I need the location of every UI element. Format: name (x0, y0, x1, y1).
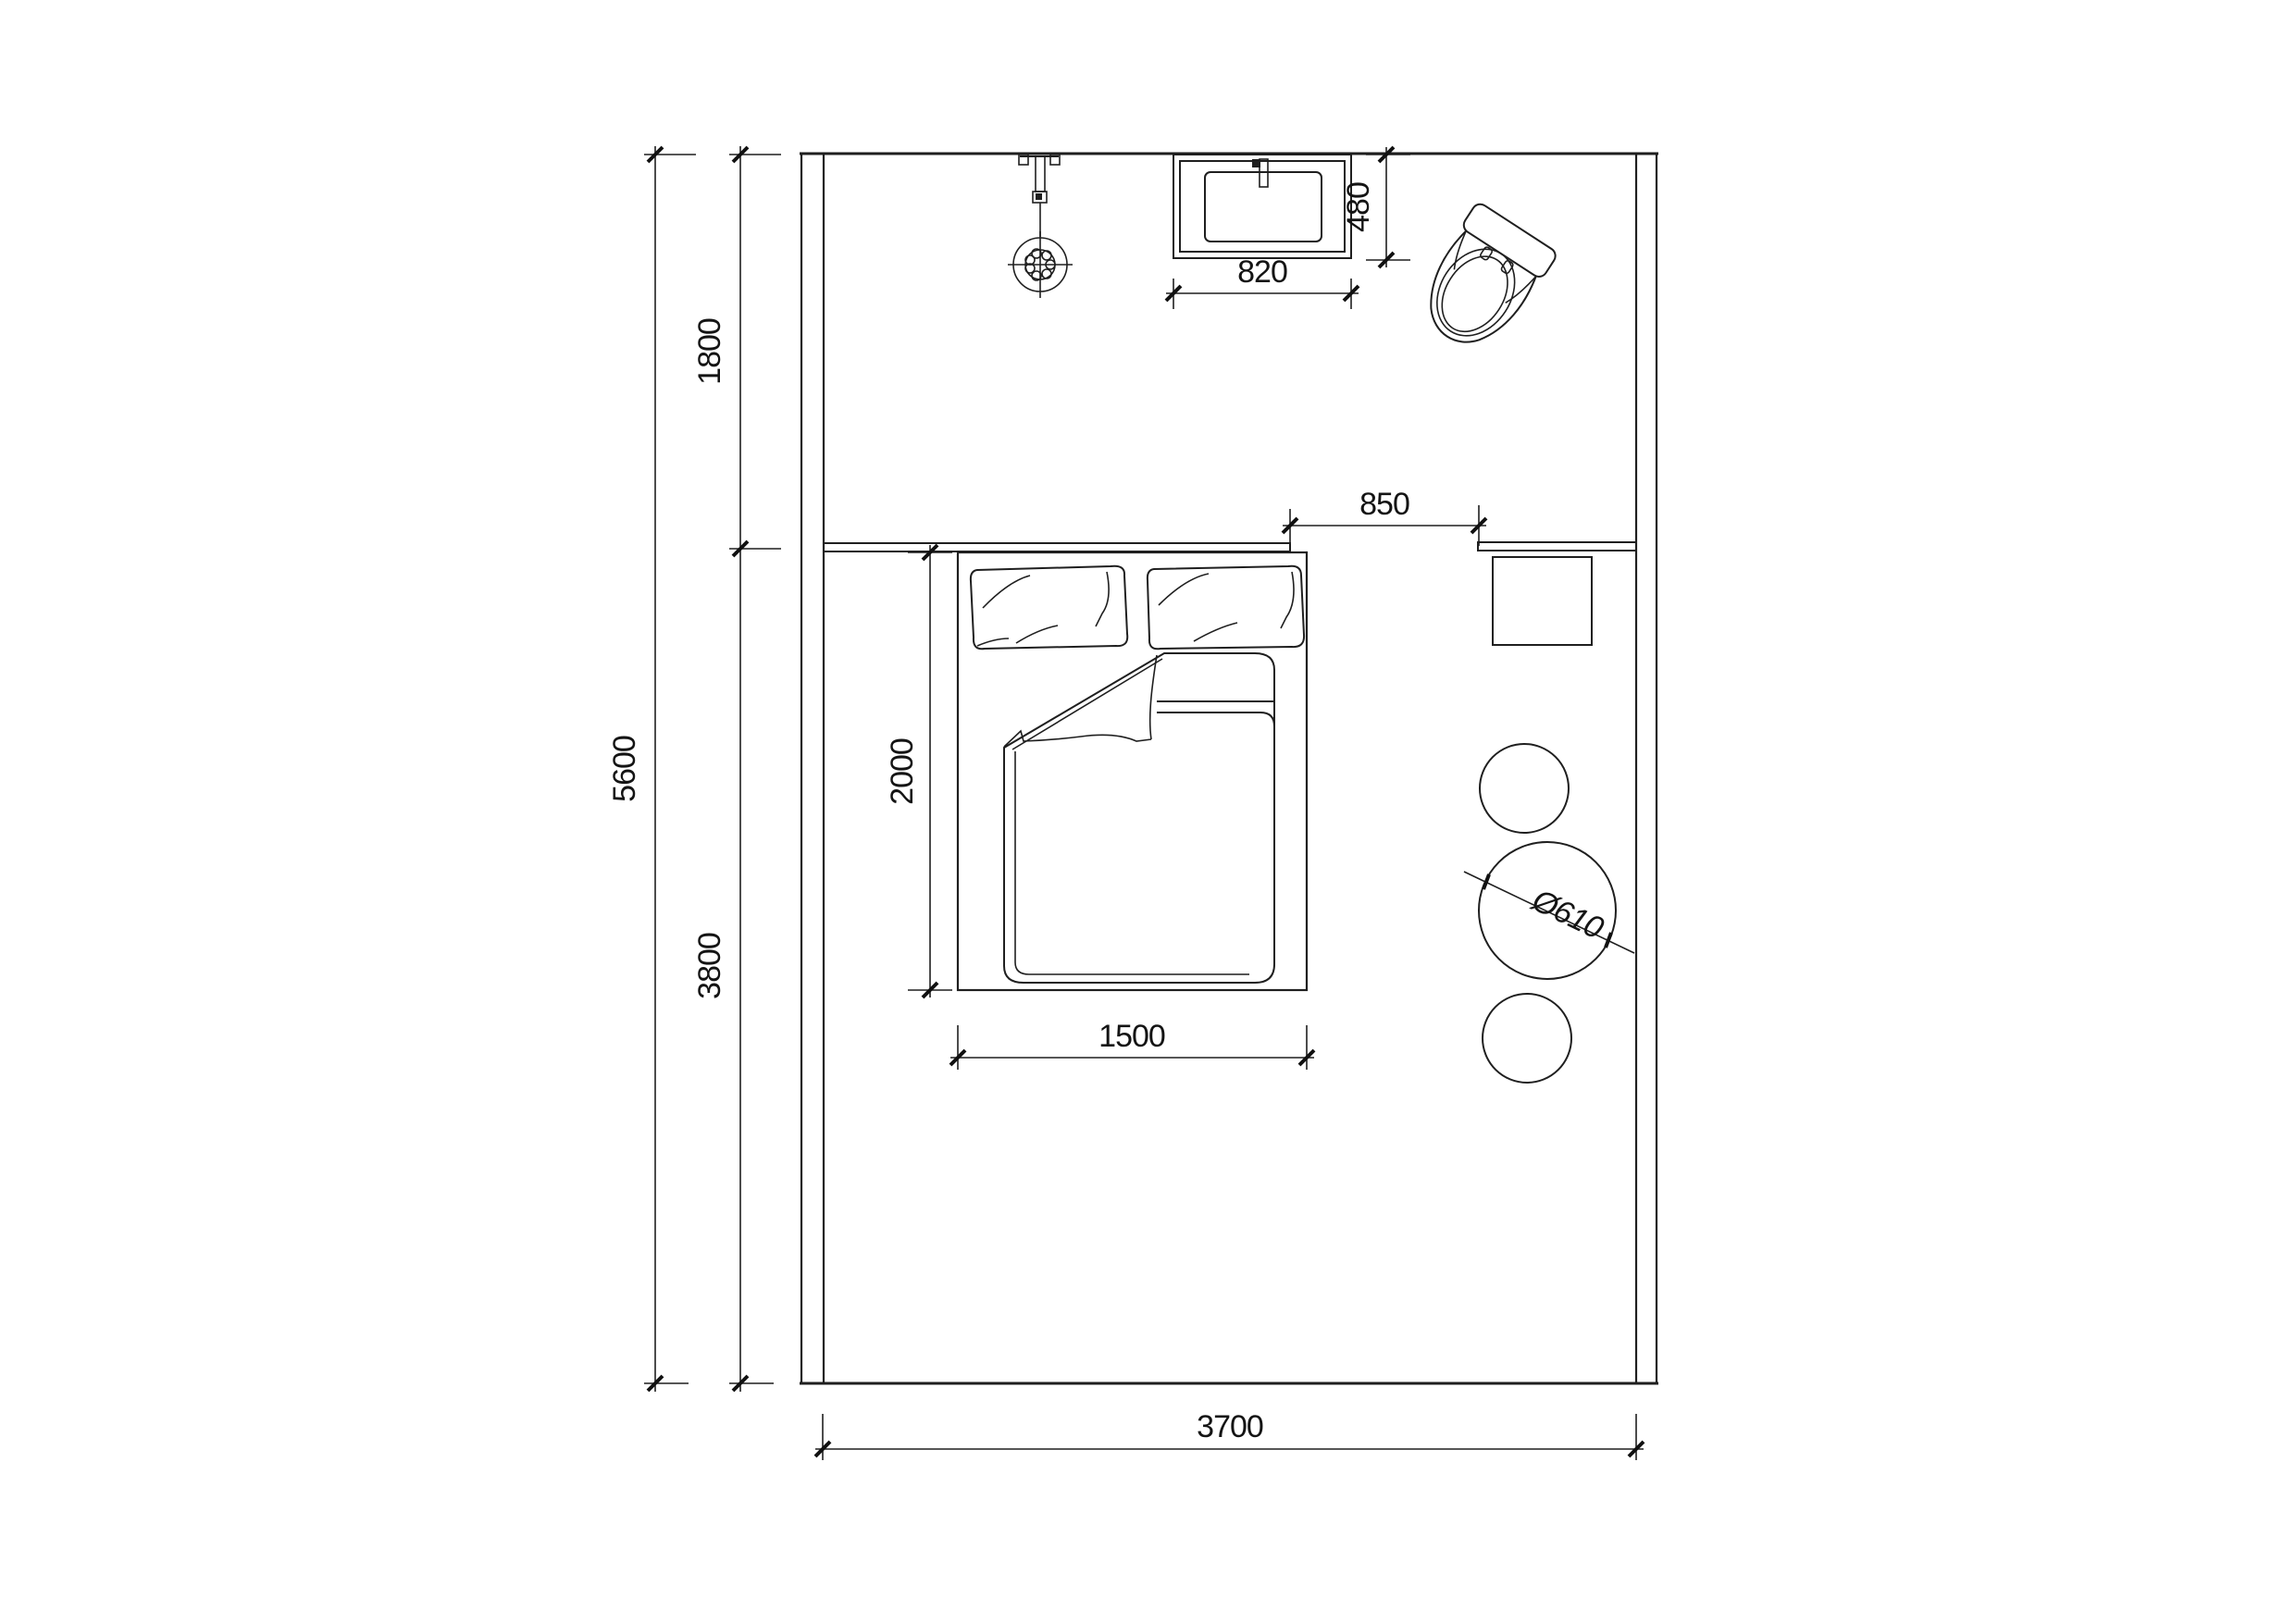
pillow-icon (1148, 566, 1304, 650)
floor-plan-drawing: 5600 1800 3800 2000 1500 3700 850 820 48… (0, 0, 2296, 1623)
toilet-tank (1460, 201, 1558, 279)
square-stool-icon (1493, 557, 1592, 645)
dim-text-3700: 3700 (1197, 1409, 1263, 1444)
dim-text-2000: 2000 (885, 738, 920, 805)
round-stool-icon (1480, 744, 1569, 833)
double-bed-plan-icon (958, 552, 1307, 990)
toilet-icon (1407, 201, 1558, 363)
seat-hinge (1500, 260, 1514, 275)
dim-text-1500: 1500 (1098, 1019, 1165, 1054)
floor-plan-canvas: 5600 1800 3800 2000 1500 3700 850 820 48… (0, 0, 2296, 1623)
fitments (824, 542, 1636, 1083)
basin-bowl (1205, 172, 1322, 242)
pillow-icon (971, 566, 1127, 650)
bed-frame (958, 552, 1307, 990)
shower-head-icon (1008, 155, 1073, 298)
toilet-rim (1421, 234, 1531, 350)
dimension-annotations: 5600 1800 3800 2000 1500 3700 850 820 48… (607, 146, 1644, 1460)
dim-text-820: 820 (1237, 254, 1287, 290)
room-walls (800, 154, 1658, 1383)
round-stool-icon (1483, 994, 1571, 1083)
dim-text-480: 480 (1341, 182, 1376, 232)
headboard-ledge (824, 543, 1290, 551)
wall-counter-icon (1478, 542, 1636, 551)
dim-text-850: 850 (1359, 487, 1409, 522)
dim-text-diameter-610: Ø610 (1526, 882, 1609, 946)
dim-text-5600: 5600 (607, 736, 642, 802)
dim-text-1800: 1800 (692, 318, 727, 385)
toilet-bowl-outer (1409, 229, 1538, 361)
dim-text-3800: 3800 (692, 933, 727, 999)
basin-outer (1173, 155, 1351, 258)
wash-basin-icon (1173, 155, 1351, 258)
folded-duvet-icon (1004, 653, 1274, 983)
